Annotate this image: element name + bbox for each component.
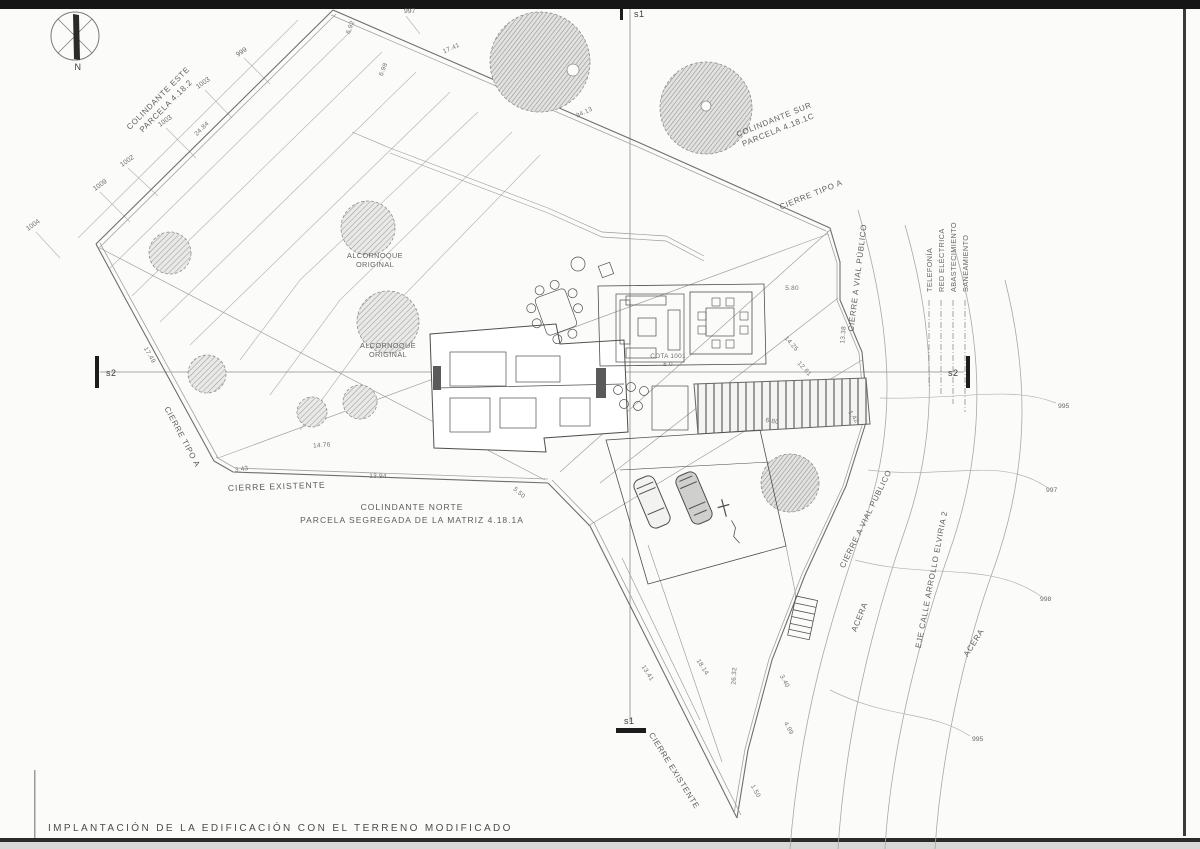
contour-label: 995 [1058,403,1070,410]
label-abastecimiento: ABASTECIMIENTO [949,222,958,292]
contour-label: 999 [235,46,248,58]
label-cierre-existente-sur: CIERRE EXISTENTE [647,731,701,810]
dimension-label: 34.13 [575,106,594,120]
dimension-label: 17.41 [442,42,461,56]
label-alcornoque-1a: ALCORNOQUE [347,251,403,260]
dimension-label: 1.50 [749,784,762,799]
contour-label: 997 [404,8,416,15]
dimension-label: 18.14 [695,658,710,677]
car-icon [674,470,715,526]
label-acera-1: ACERA [850,601,870,633]
section-s1-bottom: s1 [624,716,635,726]
label-cota-ref: ± 0 [663,361,673,368]
label-eje-calle: EJE CALLE ARROLLO ELVIRIA 2 [914,510,949,649]
contour-label: 1004 [25,218,42,233]
label-acera-2: ACERA [962,627,986,658]
tree-icon [490,12,590,112]
tree-icon [341,201,395,255]
building [430,257,870,640]
dimension-label: 17.49 [142,346,157,365]
site-plan-svg: N s1 s1 s2 s2 COLINDANTE ESTE PARCELA 4.… [0,0,1200,849]
section-s2-right: s2 [948,368,959,378]
dimension-label: 5.50 [512,486,527,500]
tree-icon [297,397,327,427]
sheet-caption: IMPLANTACIÓN DE LA EDIFICACIÓN CON EL TE… [48,821,513,834]
dimension-label: 13.94 [369,473,387,480]
contour-label: 1009 [92,178,109,193]
dimension-label: 5.80 [785,285,799,292]
label-colindante-norte-parcela: PARCELA SEGREGADA DE LA MATRIZ 4.18.1A [300,515,524,525]
utility-leaders [929,300,965,412]
label-cierre-tipo-a-oeste: CIERRE TIPO A [162,405,201,469]
dimension-label: 4.99 [782,721,795,736]
tree-icon [343,385,377,419]
label-alcornoque-1b: ORIGINAL [356,260,394,269]
tree-icon [188,355,226,393]
label-red-electrica: RED ELÉCTRICA [937,228,946,292]
label-cota: COTA 1001 [650,353,686,360]
dimension-label: 24.84 [193,120,210,137]
section-s2-left: s2 [106,368,117,378]
label-alcornoque-2a: ALCORNOQUE [360,341,416,350]
contour-label: 1003 [195,76,212,91]
street-curves [790,210,1022,849]
label-colindante-norte: COLINDANTE NORTE [361,502,464,512]
tree-icon [149,232,191,274]
car-icon [632,474,673,530]
north-arrow-icon [51,12,99,60]
contour-label: 1002 [119,154,136,169]
label-cierre-tipo-a-sur: CIERRE TIPO A [778,178,844,212]
site-plan-sheet: N s1 s1 s2 s2 COLINDANTE ESTE PARCELA 4.… [0,0,1200,849]
dimension-label: 14.76 [313,441,331,449]
contour-label: 995 [972,736,984,743]
dimension-label: 3.40 [778,674,791,689]
label-alcornoque-2b: ORIGINAL [369,350,407,359]
contour-label: 998 [1040,596,1052,603]
section-s1-top: s1 [634,9,645,19]
label-saneamiento: SANEAMIENTO [961,235,970,292]
dimension-label: 26.32 [731,667,739,685]
dimension-label: 14.25 [783,335,800,353]
label-cierre-existente: CIERRE EXISTENTE [228,480,326,493]
cross-marker-icon [716,498,740,547]
dimension-label: 13.38 [839,326,848,344]
stairs-icon [788,596,818,640]
compass-n-label: N [75,62,82,72]
contour-lines-east [830,394,1056,736]
dimension-label: 12.61 [796,360,813,378]
vehicles [632,470,740,546]
contour-label: 997 [1046,487,1058,494]
dimension-label: 6.98 [378,62,390,77]
label-telefonia: TELEFONÍA [925,248,934,292]
dimension-label: 13.41 [640,664,655,683]
tree-icon [761,454,819,512]
label-cierre-vial-1: CIERRE A VIAL PÚBLICO [846,223,868,332]
